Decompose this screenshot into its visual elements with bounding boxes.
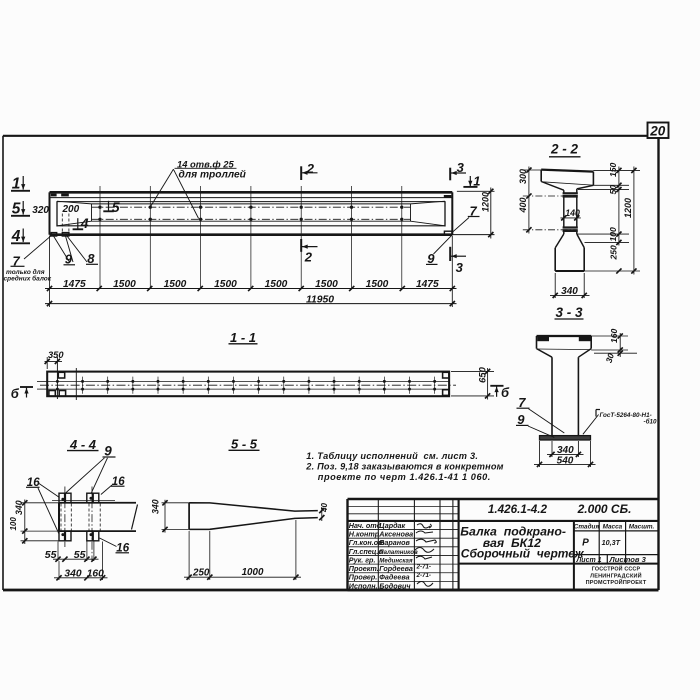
svg-text:14 отв.ф 25: 14 отв.ф 25 [177,158,234,169]
svg-text:1: 1 [12,176,21,193]
svg-text:11950: 11950 [306,294,334,305]
svg-text:200: 200 [62,204,80,215]
svg-text:2: 2 [306,161,315,176]
svg-text:б: б [501,385,510,400]
svg-text:1500: 1500 [265,279,288,290]
svg-text:ПРОМСТРОЙПРОЕКТ: ПРОМСТРОЙПРОЕКТ [586,578,647,586]
svg-text:10,3Т: 10,3Т [602,538,621,547]
svg-text:250: 250 [609,245,619,261]
svg-text:Баранов: Баранов [379,538,410,547]
svg-text:350: 350 [48,350,64,360]
svg-text:340: 340 [557,445,574,456]
svg-text:3 - 3: 3 - 3 [555,305,583,320]
svg-text:1200: 1200 [481,192,491,212]
svg-text:2-71-: 2-71- [416,572,431,579]
svg-text:250: 250 [192,568,210,579]
svg-text:100: 100 [9,517,18,531]
svg-text:150: 150 [608,162,618,177]
svg-text:55: 55 [45,549,57,561]
svg-text:100: 100 [608,227,618,242]
svg-text:4: 4 [80,215,89,231]
svg-text:5: 5 [112,199,120,215]
svg-text:Палатников: Палатников [379,549,418,556]
svg-text:4 - 4: 4 - 4 [69,437,97,452]
svg-text:Лист 1: Лист 1 [576,557,602,564]
svg-text:540: 540 [557,456,574,467]
svg-text:3: 3 [457,160,465,175]
svg-text:1475: 1475 [63,279,86,290]
svg-text:2. Поз. 9,18 заказываются в ко: 2. Поз. 9,18 заказываются в конкретном [305,462,503,472]
svg-text:650: 650 [477,366,488,383]
svg-text:400: 400 [518,197,528,213]
svg-text:55: 55 [74,549,86,561]
svg-text:Стадия: Стадия [574,523,600,531]
svg-text:1000: 1000 [242,567,264,578]
svg-text:3: 3 [456,260,464,275]
svg-text:160: 160 [609,328,619,343]
svg-text:1475: 1475 [416,279,439,290]
svg-text:340: 340 [64,568,81,579]
svg-text:160: 160 [87,568,104,579]
svg-text:5 - 5: 5 - 5 [231,436,258,451]
svg-text:для троллей: для троллей [179,170,247,181]
svg-text:1500: 1500 [214,279,237,290]
svg-text:-б10: -б10 [644,418,657,426]
svg-text:2: 2 [304,250,313,265]
svg-text:1. Таблицу исполнений см. лис: 1. Таблицу исполнений см. лист 3. [306,451,478,461]
svg-text:340: 340 [561,286,578,297]
svg-text:1: 1 [473,174,480,189]
svg-text:1 - 1: 1 - 1 [230,330,256,345]
svg-text:1.426.1-4.2: 1.426.1-4.2 [488,503,548,516]
svg-text:Р: Р [582,537,589,548]
svg-text:Бодович: Бодович [379,581,411,590]
svg-text:Сборочный чертеж: Сборочный чертеж [461,546,585,560]
svg-text:Исполн.: Исполн. [349,581,378,590]
svg-text:340: 340 [151,499,161,514]
svg-text:50: 50 [608,185,618,195]
svg-text:2.000 СБ.: 2.000 СБ. [577,502,632,516]
svg-text:40: 40 [320,503,329,513]
svg-text:1500: 1500 [164,279,187,290]
svg-text:1500: 1500 [113,279,136,290]
svg-text:б: б [11,386,20,401]
svg-text:7: 7 [518,395,526,410]
svg-text:Листов 3: Листов 3 [609,555,647,564]
svg-text:2-71-: 2-71- [416,563,431,570]
svg-text:1200: 1200 [623,198,633,218]
svg-text:5: 5 [12,201,21,218]
svg-text:средних балок: средних балок [4,274,52,282]
svg-text:Масшт.: Масшт. [629,524,655,531]
svg-text:340: 340 [14,500,24,515]
svg-text:4: 4 [11,228,21,245]
svg-text:1500: 1500 [366,279,389,290]
svg-text:проекте по черт 1.426.1-41 1 0: проекте по черт 1.426.1-41 1 060. [318,472,491,482]
svg-text:1500: 1500 [315,279,338,290]
svg-text:Масса: Масса [603,524,623,531]
svg-text:ЛЕНИНГРАДСКИЙ: ЛЕНИНГРАДСКИЙ [590,571,642,579]
svg-text:2 - 2: 2 - 2 [550,141,579,156]
svg-text:320: 320 [32,205,49,216]
svg-text:ГОССТРОЙ СССР: ГОССТРОЙ СССР [592,565,641,573]
svg-text:300: 300 [518,169,528,184]
svg-text:20: 20 [649,123,666,138]
